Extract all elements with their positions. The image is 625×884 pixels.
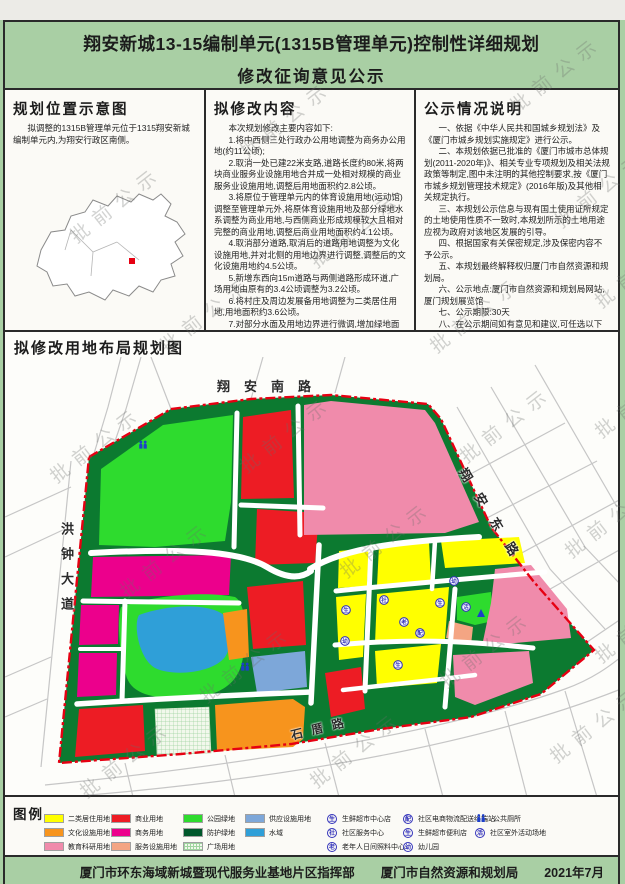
color-chip-culture	[44, 828, 64, 837]
outdoor-activity-icon: 活	[475, 828, 485, 838]
residential-parcel	[336, 594, 366, 660]
color-chip-park-green	[183, 814, 203, 823]
map-heading: 拟修改用地布局规划图	[14, 337, 184, 358]
legend-item: 服务设施用地	[111, 841, 177, 852]
modification-item: 5.新增东西向15m道路与两侧道路形成环道,广场用地由原有的3.4公顷调整为3.…	[214, 273, 406, 296]
document-frame: 翔安新城13-15编制单元(1315B管理单元)控制性详细规划 修改征询意见公示…	[3, 20, 620, 884]
xiamen-outline-map	[11, 170, 199, 322]
plaza-parcel	[155, 707, 211, 755]
location-panel-heading: 规划位置示意图	[13, 98, 196, 119]
page-title-line2: 修改征询意见公示	[5, 63, 618, 87]
legend-item: 生生鲜超市便利店	[403, 827, 467, 838]
legend-item: 水域	[245, 827, 283, 838]
color-chip-plaza	[183, 842, 203, 851]
legend-item: 生生鲜超市中心店	[327, 813, 391, 824]
svg-text:配: 配	[417, 629, 423, 637]
modification-item: 6.将村庄及周边发展备用地调整为二类居住用地,用地面积约3.6公顷。	[214, 296, 406, 319]
legend-heading: 图例	[13, 803, 44, 823]
modification-item: 1.将中西侧三处行政办公用地调整为商务办公用地(约11公顷);	[214, 135, 406, 158]
city-boundary-outline	[37, 194, 185, 300]
title-band: 翔安新城13-15编制单元(1315B管理单元)控制性详细规划 修改征询意见公示	[5, 22, 618, 88]
color-chip-protective-green	[183, 828, 203, 837]
legend-panel: 图例 二类居住用地 文化设施用地 教育科研用地 商业用地 商务用地 服务设施用地…	[5, 795, 618, 855]
notice-item: 五、本规划最终解释权归厦门市自然资源和规划局。	[424, 261, 610, 284]
business-office-parcel	[79, 605, 119, 645]
modification-item: 7.对部分水面及用地边界进行微调,增加绿地面积。	[214, 319, 406, 331]
color-chip-commercial	[111, 814, 131, 823]
svg-text:活: 活	[463, 603, 469, 611]
legend-item: 教育科研用地	[44, 841, 110, 852]
legend-item: 老老年人日间照料中心	[327, 841, 405, 852]
location-panel-body: 拟调整的1315B管理单元位于1315翔安新城编制单元内,为翔安行政区南侧。	[13, 123, 196, 146]
education-parcel	[304, 401, 479, 535]
modification-panel: 拟修改内容 本次规划修改主要内容如下: 1.将中西侧三处行政办公用地调整为商务办…	[206, 90, 416, 330]
notice-item: 二、本规划依据已批准的《厦门市城市总体规划(2011-2020年)》、相关专业专…	[424, 146, 610, 204]
business-office-parcel	[91, 555, 231, 597]
modification-item: 3.将原位于管理单元内的体育设施用地(运动馆)调整至管理单元外,将原体育设施用地…	[214, 192, 406, 238]
footer-org1: 厦门市环东海域新城暨现代服务业基地片区指挥部	[80, 862, 355, 881]
color-chip-business	[111, 828, 131, 837]
location-panel: 规划位置示意图 拟调整的1315B管理单元位于1315翔安新城编制单元内,为翔安…	[5, 90, 206, 330]
commercial-parcel	[247, 581, 306, 649]
site-location-marker	[129, 258, 135, 264]
fresh-market-store-icon: 生	[403, 828, 413, 838]
svg-text:幼: 幼	[451, 577, 457, 585]
legend-item: 活社区室外活动场地	[475, 827, 546, 838]
modification-item: 2.取消一处已建22米支路,道路长度约80米,将两块商业服务业设施用地合并成一处…	[214, 158, 406, 193]
road-label-north: 翔安南路	[217, 376, 325, 395]
color-chip-service	[111, 842, 131, 851]
planning-notice-page: 翔安新城13-15编制单元(1315B管理单元)控制性详细规划 修改征询意见公示…	[0, 0, 625, 884]
svg-text:生: 生	[343, 606, 349, 614]
svg-text:老: 老	[400, 618, 407, 626]
residential-parcel	[375, 587, 449, 644]
modification-item: 4.取消部分道路,取消后的道路用地调整为文化设施用地,并对北侧的用地边界进行调整…	[214, 238, 406, 273]
notice-info-panel: 公示情况说明 一、依据《中华人民共和国城乡规划法》及《厦门市城乡规划实施规定》进…	[416, 90, 618, 330]
footer-date: 2021年7月	[544, 862, 604, 881]
color-chip-water	[245, 828, 265, 837]
kindergarten-icon: 幼	[403, 842, 413, 852]
commercial-parcel	[75, 705, 145, 757]
community-service-icon: 社	[327, 828, 337, 838]
color-chip-education	[44, 842, 64, 851]
legend-item: 商业用地	[111, 813, 163, 824]
ecommerce-logistics-icon: 配	[403, 814, 413, 824]
notice-item: 七、公示期限:30天	[424, 307, 610, 319]
supply-facility-parcel	[251, 651, 307, 693]
color-chip-supply	[245, 814, 265, 823]
notice-item: 四、根据国家有关保密规定,涉及保密内容不予公示。	[424, 238, 610, 261]
fresh-market-center-icon: 生	[327, 814, 337, 824]
notice-item: 一、依据《中华人民共和国城乡规划法》及《厦门市城乡规划实施规定》进行公示。	[424, 123, 610, 146]
residential-parcel	[377, 542, 431, 586]
legend-item: 公共厕所	[475, 813, 521, 824]
svg-text:社: 社	[380, 596, 387, 604]
modification-intro: 本次规划修改主要内容如下:	[214, 123, 406, 135]
svg-text:幼: 幼	[342, 637, 348, 645]
road-label-west: 洪钟大道	[57, 522, 76, 622]
svg-text:生: 生	[437, 599, 443, 607]
commercial-parcel	[241, 410, 294, 499]
legend-item: 公园绿地	[183, 813, 235, 824]
notice-item: 六、公示地点:厦门市自然资源和规划局网站, 厦门规划展览馆	[424, 284, 610, 307]
top-margin	[0, 0, 625, 20]
legend-item: 社社区服务中心	[327, 827, 384, 838]
park-green-parcel	[99, 415, 233, 547]
notice-item: 八、在公示期间如有意见和建议,可任选以下方式反馈:	[424, 319, 610, 331]
legend-item: 广场用地	[183, 841, 235, 852]
elderly-daycare-icon: 老	[327, 842, 337, 852]
info-panels-row: 规划位置示意图 拟调整的1315B管理单元位于1315翔安新城编制单元内,为翔安…	[5, 88, 618, 330]
water-body	[137, 606, 231, 672]
legend-item: 商务用地	[111, 827, 163, 838]
notice-panel-heading: 公示情况说明	[424, 98, 610, 119]
land-use-map-panel: 拟修改用地布局规划图 翔安南路 翔安东路 洪钟大道 石厝路	[5, 330, 618, 795]
notice-item: 三、本规划公示信息与现有国土使用证所规定的土地使用性质不一致时,本规划所示的土地…	[424, 204, 610, 239]
page-title-line1: 翔安新城13-15编制单元(1315B管理单元)控制性详细规划	[5, 31, 618, 56]
color-chip-residential	[44, 814, 64, 823]
legend-item: 文化设施用地	[44, 827, 110, 838]
legend-item: 二类居住用地	[44, 813, 110, 824]
public-toilet-icon	[475, 813, 488, 824]
legend-item: 供应设施用地	[245, 813, 311, 824]
footer-org2: 厦门市自然资源和规划局	[381, 862, 519, 881]
legend-item: 幼幼儿园	[403, 841, 439, 852]
footer-band: 厦门市环东海域新城暨现代服务业基地片区指挥部 厦门市自然资源和规划局 2021年…	[5, 855, 618, 884]
modification-panel-heading: 拟修改内容	[214, 98, 406, 119]
business-office-parcel	[77, 653, 117, 697]
legend-item: 防护绿地	[183, 827, 235, 838]
svg-text:生: 生	[395, 661, 401, 669]
